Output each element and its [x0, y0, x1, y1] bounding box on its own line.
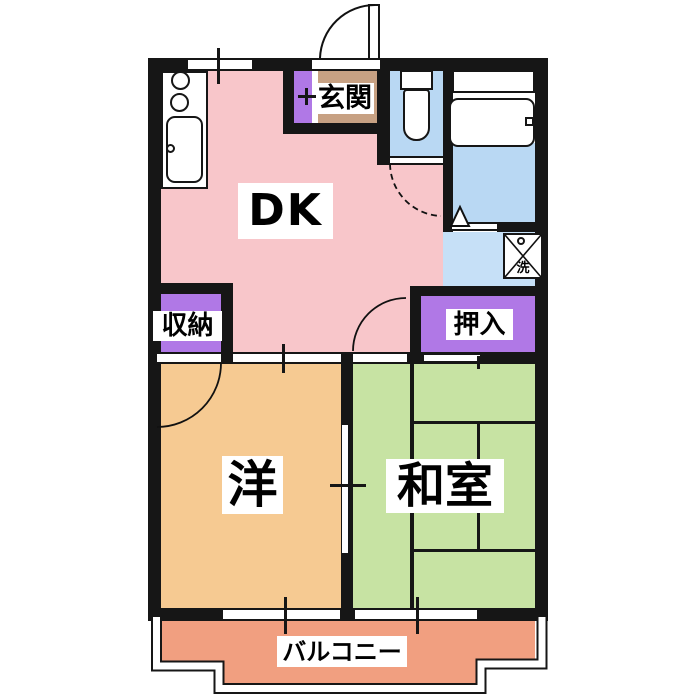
opening-tick: [282, 344, 285, 373]
toilet-bowl-icon: [403, 89, 430, 141]
bathtub-drain-icon: [525, 117, 534, 126]
tatami-line: [413, 421, 535, 424]
faucet-icon: [166, 144, 175, 153]
wall-bottom: [148, 608, 223, 621]
tatami-line: [477, 356, 480, 369]
window-top: [188, 58, 252, 71]
sliding-door-tick: [330, 484, 366, 487]
sink-bowl-icon: [171, 71, 190, 90]
bath-threshold: [452, 222, 497, 231]
floorplan-canvas: 洗 DK 玄関 収納 押入 洋 和室 バルコニー: [0, 0, 700, 700]
wall-right: [535, 58, 548, 621]
entrance-door-arc: [320, 5, 375, 58]
wall-oshiire-top: [410, 286, 535, 296]
wall-storage-right: [221, 283, 233, 364]
room-label-storage: 収納: [153, 311, 222, 341]
washer-faucet-icon: [517, 237, 525, 245]
wall-bath-bottom: [443, 222, 452, 232]
room-label-balcony: バルコニー: [277, 636, 407, 667]
wall-top: [252, 58, 312, 71]
storage-door: [157, 352, 221, 364]
genkan-tick: [298, 95, 318, 98]
toilet-tank-icon: [400, 70, 433, 90]
wall-oshiire-left: [410, 286, 421, 364]
tatami-line: [413, 549, 535, 552]
washitsu-sliding-door: [342, 425, 348, 553]
room-label-washitsu: 和室: [386, 459, 504, 513]
bath-window-icon: [452, 70, 535, 93]
balcony-window-tick: [416, 597, 419, 634]
washer-kanji: 洗: [505, 257, 541, 276]
wall-bottom: [477, 608, 548, 621]
washitsu-doorway: [353, 352, 407, 364]
wall-toilet-left: [377, 58, 390, 165]
entrance-door-leaf: [368, 4, 380, 60]
genkan-tick: [305, 88, 308, 105]
room-label-oshiire: 押入: [446, 309, 513, 340]
balcony-window-west: [223, 608, 340, 621]
toilet-doorway: [390, 156, 443, 165]
bathtub-icon: [449, 98, 535, 147]
oshiire-fusuma: [424, 355, 480, 361]
balcony-window-tick: [284, 597, 287, 634]
wall-bath-bottom: [497, 222, 535, 232]
sink-bowl-icon: [170, 93, 189, 112]
room-label-dk: DK: [238, 183, 333, 239]
window-tick: [217, 48, 220, 84]
wall-genkan-bottom: [283, 123, 390, 134]
bathroom-floor: [452, 143, 535, 222]
wall-mid: [148, 352, 157, 364]
dk-western-opening: [233, 352, 341, 364]
room-label-genkan: 玄関: [316, 83, 374, 114]
room-label-western: 洋: [222, 456, 283, 514]
